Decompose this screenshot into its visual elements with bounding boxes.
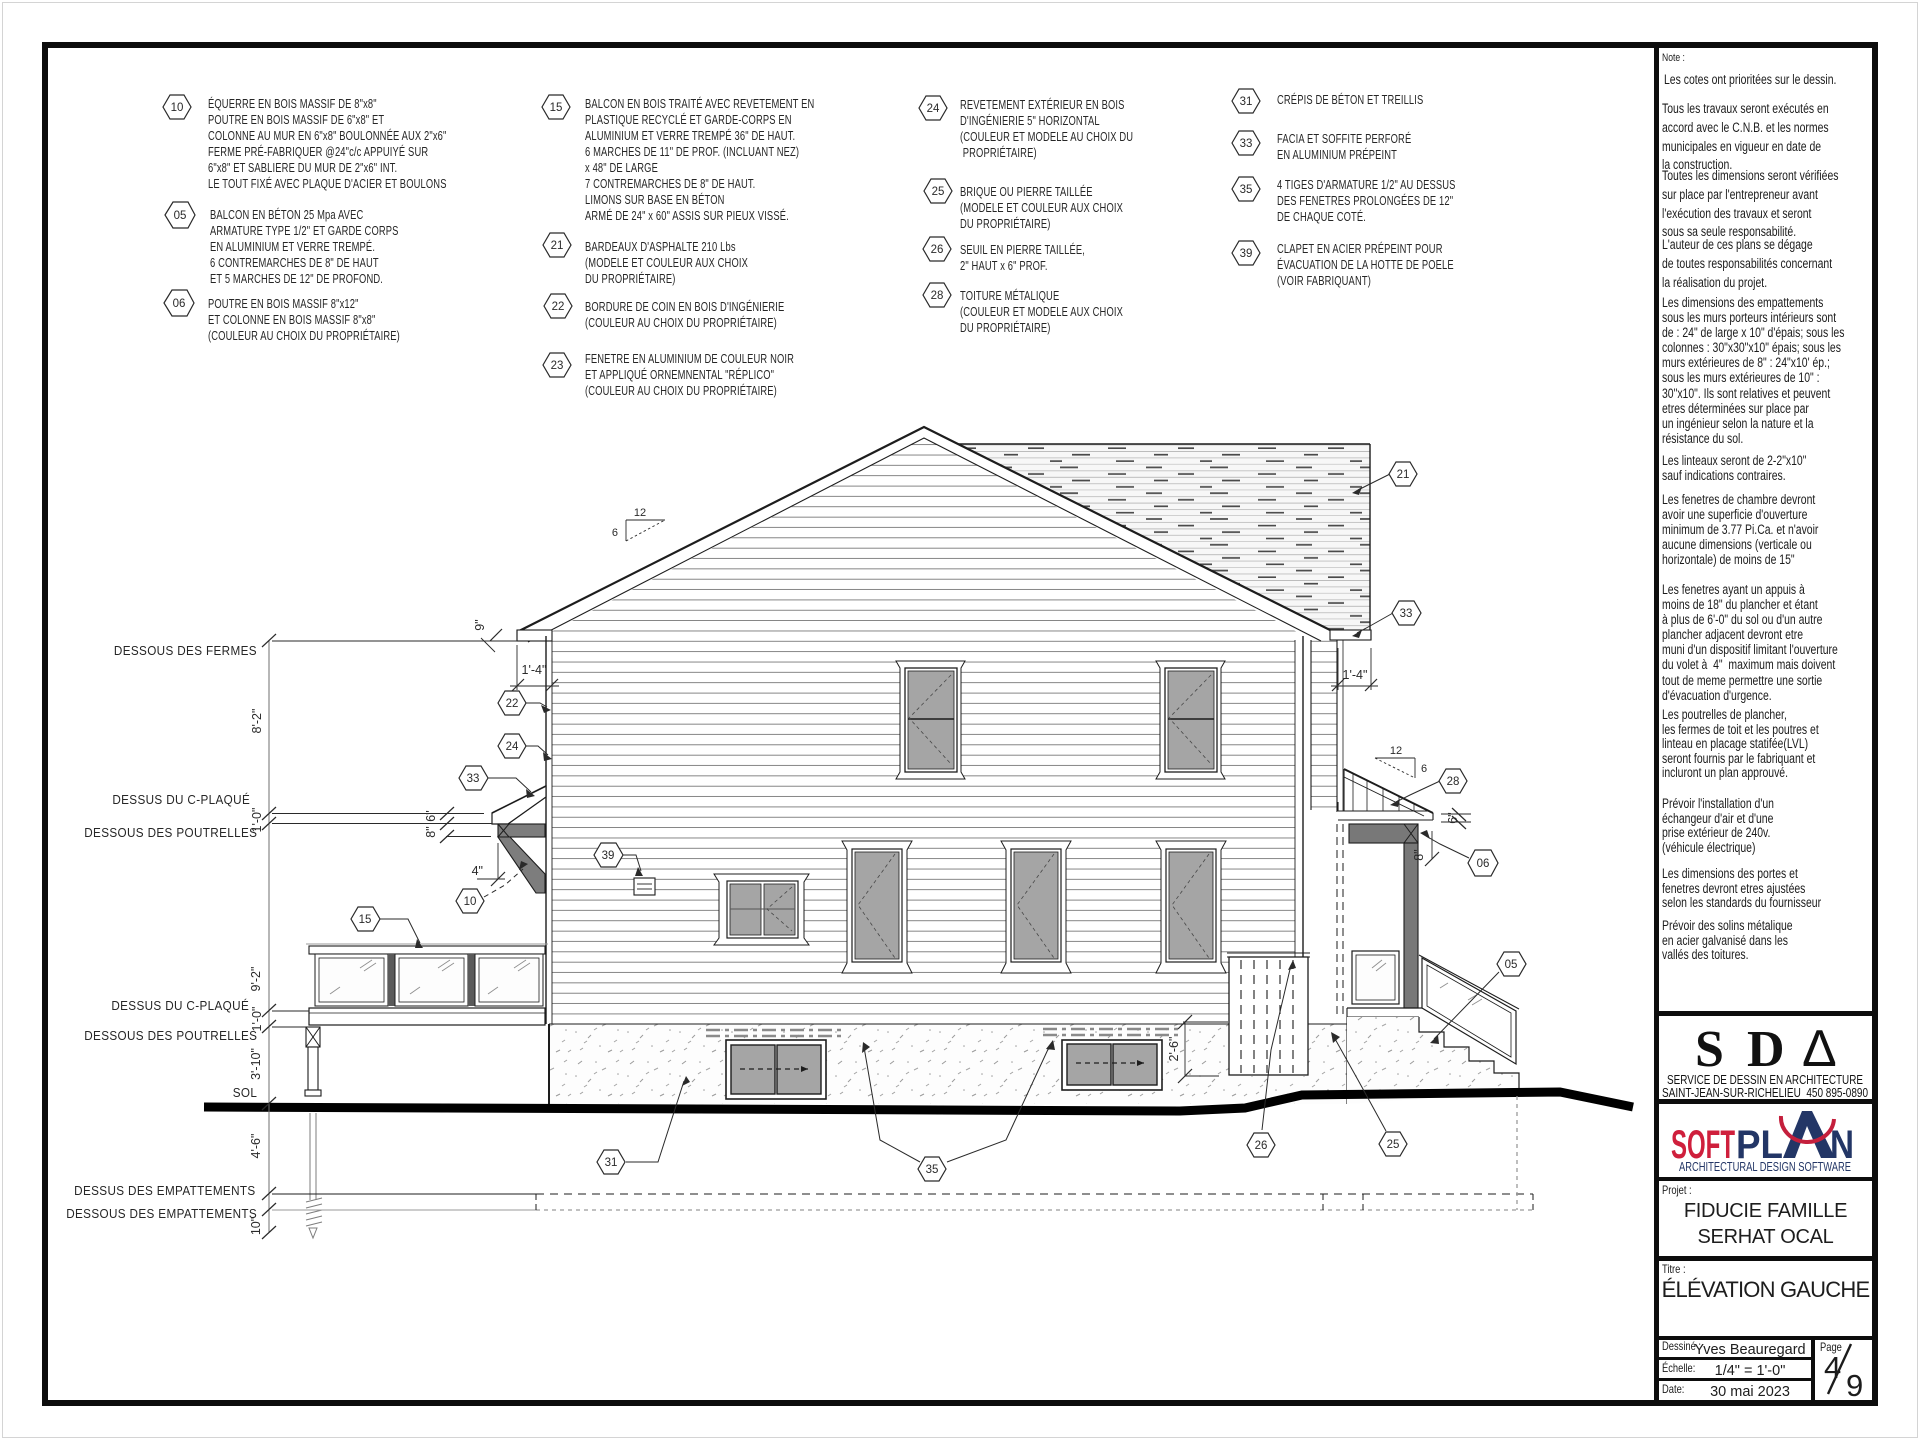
svg-text:31: 31 bbox=[1240, 96, 1253, 108]
svg-text:05: 05 bbox=[1505, 959, 1518, 971]
svg-text:Δ: Δ bbox=[1802, 1020, 1837, 1078]
svg-text:D: D bbox=[1747, 1021, 1785, 1078]
svg-text:33: 33 bbox=[1240, 138, 1253, 150]
svg-text:8": 8" bbox=[1412, 849, 1426, 860]
svg-text:33: 33 bbox=[467, 773, 480, 785]
svg-text:6": 6" bbox=[424, 810, 438, 821]
svg-text:1'-4": 1'-4" bbox=[522, 663, 547, 677]
svg-text:3'-10": 3'-10" bbox=[249, 1048, 263, 1080]
svg-text:6: 6 bbox=[612, 527, 618, 539]
svg-text:21: 21 bbox=[1397, 469, 1410, 481]
svg-text:24: 24 bbox=[506, 741, 519, 753]
svg-text:9": 9" bbox=[473, 619, 487, 630]
svg-text:39: 39 bbox=[602, 850, 615, 862]
svg-text:15: 15 bbox=[359, 914, 372, 926]
svg-text:9'-2": 9'-2" bbox=[249, 967, 263, 992]
svg-text:4'-6": 4'-6" bbox=[249, 1134, 263, 1159]
svg-text:6: 6 bbox=[1421, 763, 1427, 775]
svg-text:8'-2": 8'-2" bbox=[250, 709, 264, 734]
svg-text:33: 33 bbox=[1400, 608, 1413, 620]
svg-text:24: 24 bbox=[927, 103, 940, 115]
svg-text:28: 28 bbox=[1447, 776, 1460, 788]
svg-text:35: 35 bbox=[1240, 184, 1253, 196]
svg-text:28: 28 bbox=[931, 290, 944, 302]
svg-text:25: 25 bbox=[932, 186, 945, 198]
svg-text:6": 6" bbox=[1446, 812, 1460, 823]
svg-text:26: 26 bbox=[931, 244, 944, 256]
svg-text:12: 12 bbox=[1390, 745, 1402, 757]
svg-text:22: 22 bbox=[552, 301, 565, 313]
svg-text:10: 10 bbox=[464, 896, 477, 908]
svg-text:4": 4" bbox=[472, 864, 483, 878]
svg-text:SAINT-JEAN-SUR-RICHELIEU 450: SAINT-JEAN-SUR-RICHELIEU 450 895-0890 bbox=[1662, 1085, 1868, 1099]
svg-text:22: 22 bbox=[506, 698, 519, 710]
svg-text:39: 39 bbox=[1240, 248, 1253, 260]
svg-text:21: 21 bbox=[551, 240, 564, 252]
svg-text:ARCHITECTURAL DESIGN SOFTWARE: ARCHITECTURAL DESIGN SOFTWARE bbox=[1679, 1159, 1851, 1174]
svg-text:S: S bbox=[1695, 1021, 1724, 1078]
svg-text:25: 25 bbox=[1387, 1139, 1400, 1151]
svg-text:31: 31 bbox=[605, 1157, 618, 1169]
svg-text:9: 9 bbox=[1846, 1368, 1863, 1403]
svg-text:8": 8" bbox=[424, 826, 438, 837]
svg-text:12: 12 bbox=[634, 507, 646, 519]
svg-text:2'-6": 2'-6" bbox=[1167, 1037, 1181, 1062]
svg-text:10: 10 bbox=[171, 102, 184, 114]
svg-text:05: 05 bbox=[174, 210, 187, 222]
svg-text:26: 26 bbox=[1255, 1140, 1268, 1152]
svg-text:06: 06 bbox=[173, 298, 186, 310]
svg-text:4: 4 bbox=[1824, 1350, 1841, 1385]
svg-text:35: 35 bbox=[926, 1164, 939, 1176]
svg-text:23: 23 bbox=[551, 360, 564, 372]
svg-text:15: 15 bbox=[550, 102, 563, 114]
svg-text:06: 06 bbox=[1477, 858, 1490, 870]
svg-text:1'-4": 1'-4" bbox=[1343, 668, 1368, 682]
